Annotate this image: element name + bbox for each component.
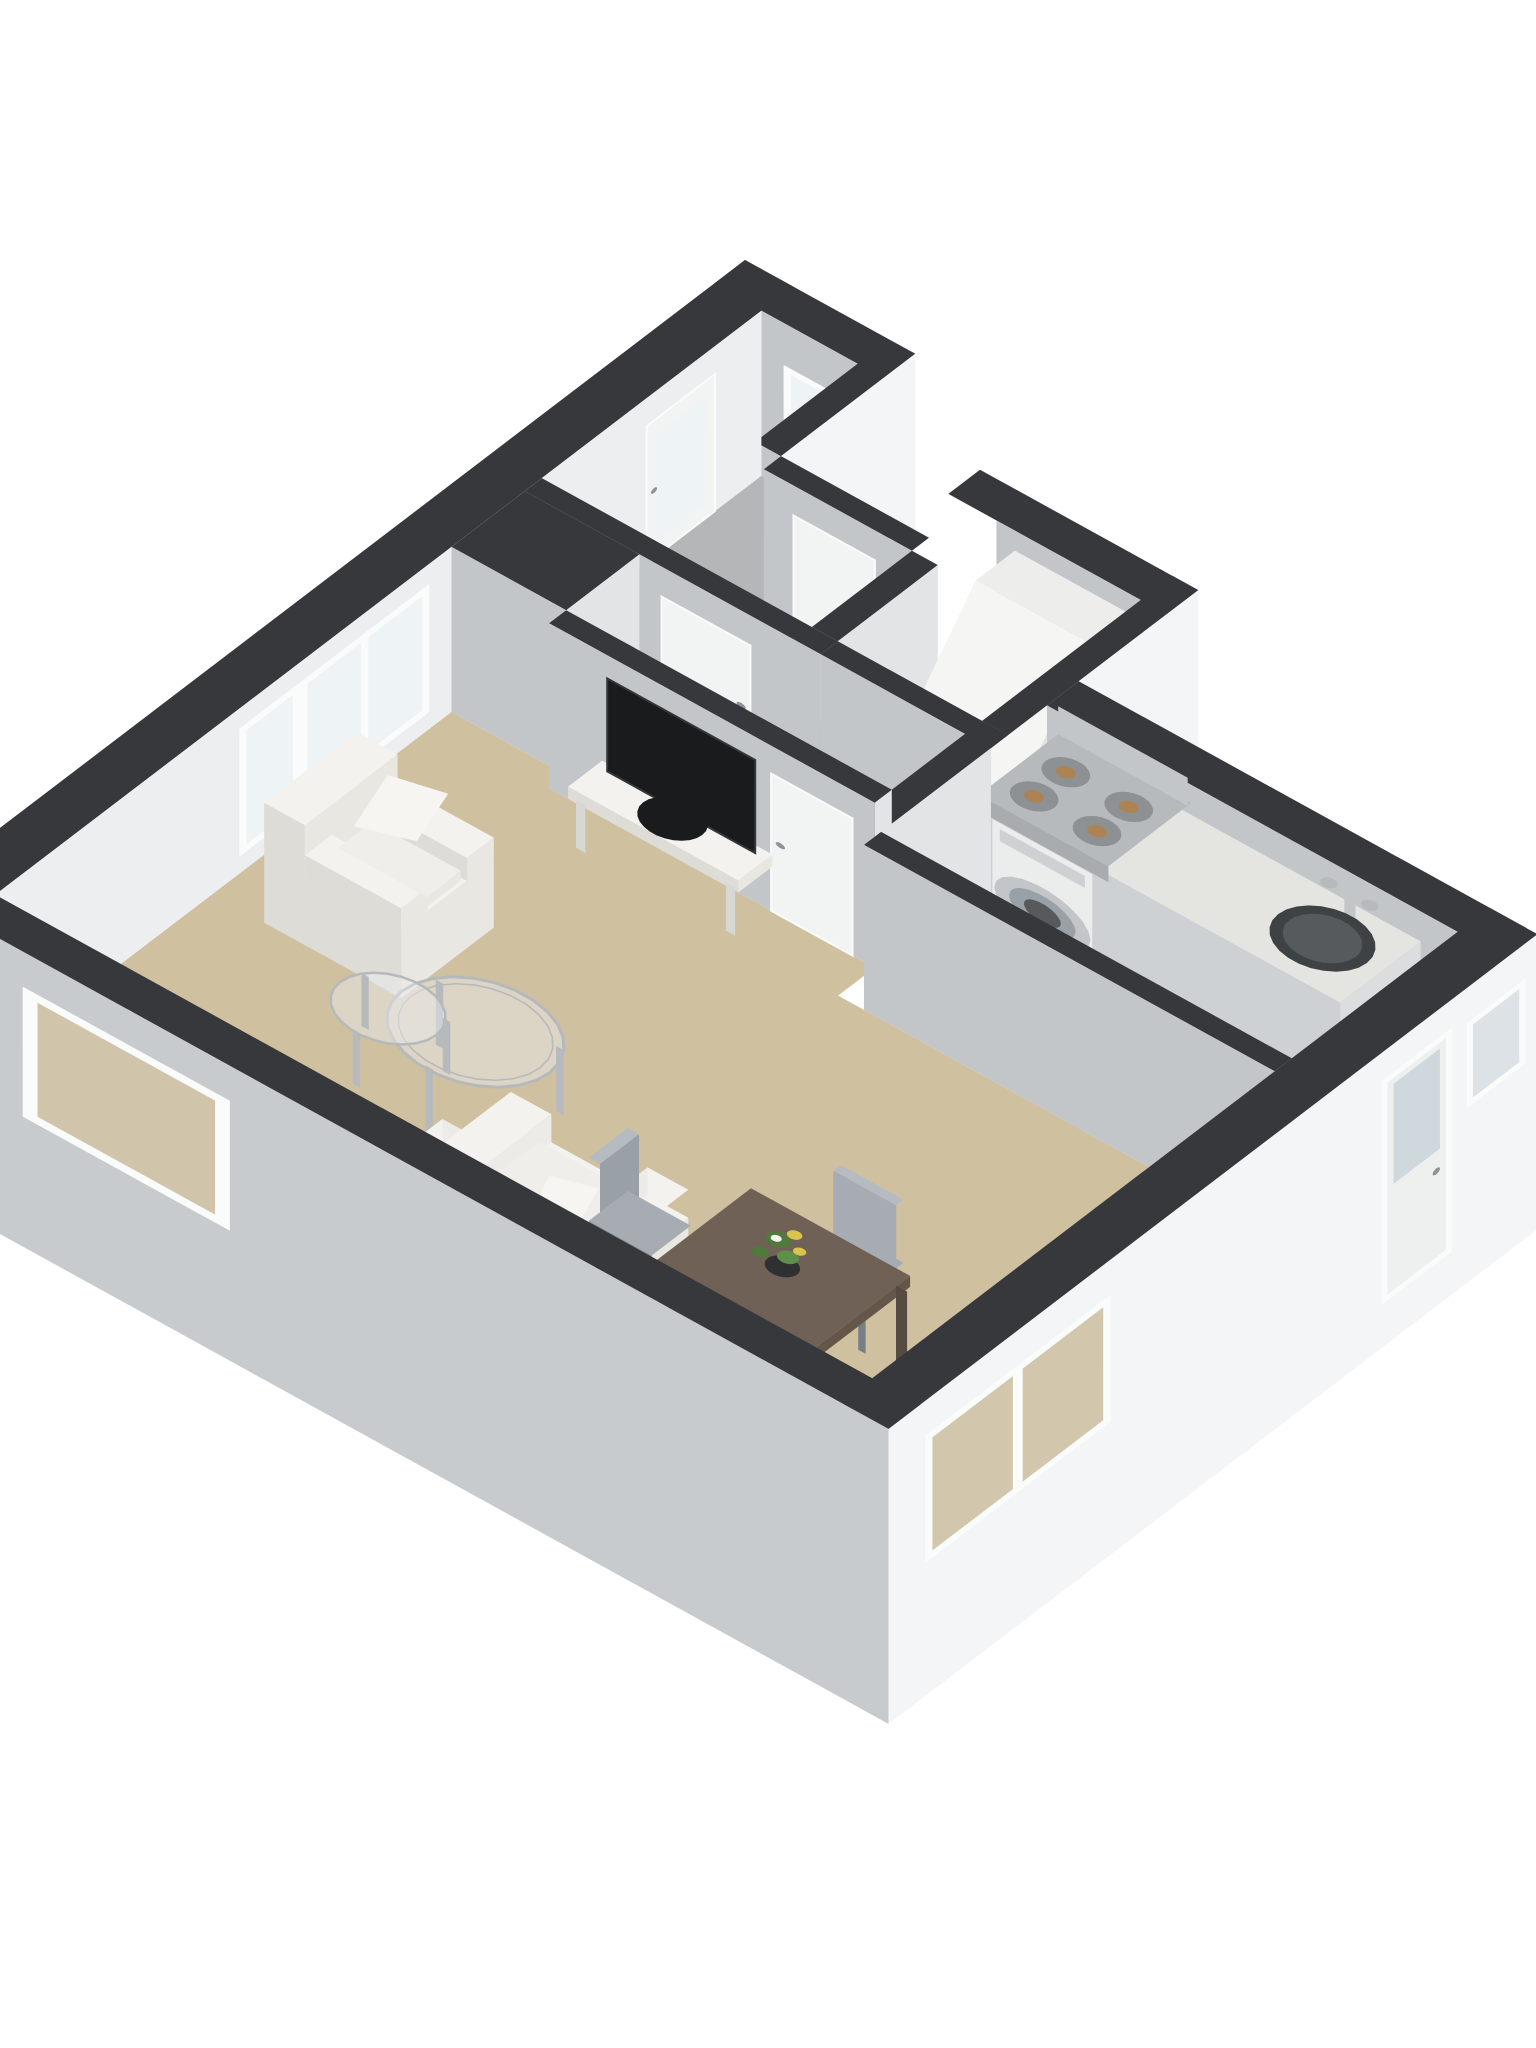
- coffee-table-leg: [353, 1031, 360, 1088]
- coffee-table-leg: [426, 1065, 433, 1134]
- faucet-icon: [1344, 880, 1355, 918]
- coffee-table-leg: [443, 1018, 450, 1075]
- coffee-table-leg: [556, 1046, 563, 1115]
- tv-stand-leg: [576, 800, 585, 853]
- tv-stand-leg: [726, 883, 735, 936]
- coffee-table-leg: [361, 973, 368, 1030]
- floorplan-image: [0, 0, 1536, 2048]
- floorplan-3d-render: [0, 0, 1536, 2048]
